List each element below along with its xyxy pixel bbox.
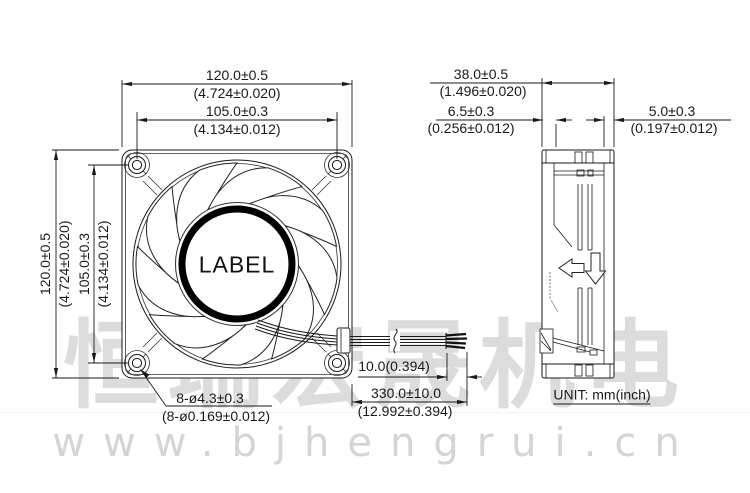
wire-break-symbol <box>390 329 400 353</box>
dim-front-height-inch: (4.724±0.020) <box>57 220 71 307</box>
dim-front-hole-pitch-width-mm: 105.0±0.3 <box>206 104 268 118</box>
fan-dimension-drawing: 恒瑞宏晟机电 www.bjhengrui.cn <box>0 0 750 493</box>
dim-wire-length-inch: (12.992±0.394) <box>358 404 453 418</box>
wire-stripped-ends <box>446 333 467 349</box>
dim-wire-length-mm: 330.0±10.0 <box>371 386 441 400</box>
technical-drawing-linework <box>0 0 750 493</box>
dim-side-depth-mm: 38.0±0.5 <box>454 67 508 81</box>
fan-hub-label: LABEL <box>199 252 276 279</box>
dim-side-left-wall-inch: (0.256±0.012) <box>427 121 514 135</box>
dim-front-height-mm: 120.0±0.5 <box>38 233 52 295</box>
dim-front-hole-pitch-height-mm: 105.0±0.3 <box>77 233 91 295</box>
dim-front-width-inch: (4.724±0.020) <box>193 86 280 100</box>
dim-front-width-mm: 120.0±0.5 <box>206 68 268 82</box>
dim-mounting-holes-mm: 8-ø4.3±0.3 <box>176 391 244 405</box>
dim-front-hole-pitch-width-inch: (4.134±0.012) <box>193 122 280 136</box>
dim-mounting-holes-inch: (8-ø0.169±0.012) <box>162 409 270 423</box>
dim-side-depth-inch: (1.496±0.020) <box>439 84 526 98</box>
unit-note: UNIT: mm(inch) <box>553 388 650 405</box>
dim-wire-strip-length: 10.0(0.394) <box>358 359 430 373</box>
dim-side-left-wall-mm: 6.5±0.3 <box>448 104 495 118</box>
dim-side-right-wall-mm: 5.0±0.3 <box>649 104 696 118</box>
dim-front-hole-pitch-height-inch: (4.134±0.012) <box>96 220 110 307</box>
dim-side-right-wall-inch: (0.197±0.012) <box>630 121 717 135</box>
